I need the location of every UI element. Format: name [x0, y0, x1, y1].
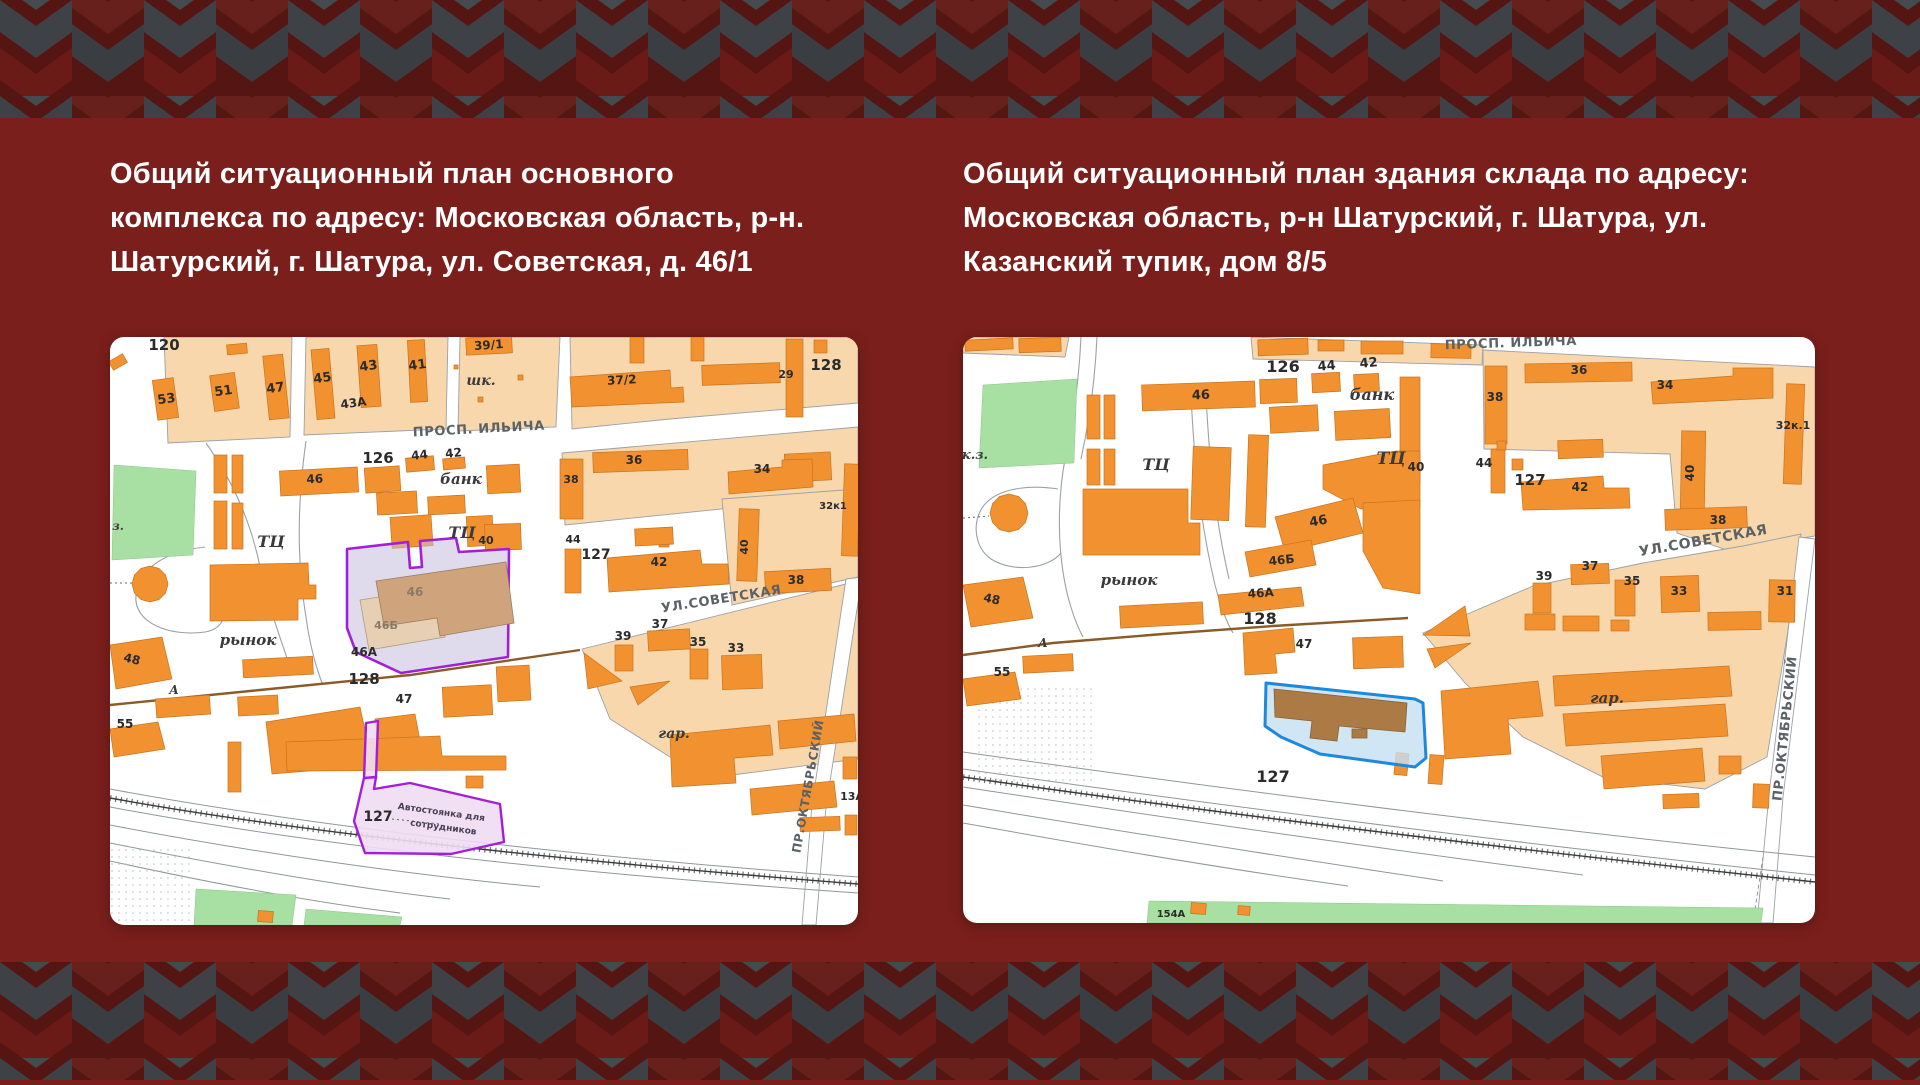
map-label: 46А [351, 645, 378, 659]
map-label: 42 [445, 445, 463, 461]
left-map-title: Общий ситуационный план основного компле… [110, 152, 870, 284]
map-label: 51 [214, 383, 234, 400]
map-label: 31 [1777, 584, 1794, 598]
map-label: 46Б [374, 619, 398, 632]
map-label: 37/2 [607, 372, 637, 388]
map-label: ТЦ [448, 523, 476, 542]
map-label: 36 [1571, 363, 1588, 377]
right-map-title: Общий ситуационный план здания склада по… [963, 152, 1833, 284]
map-label: 46 [306, 472, 323, 487]
map-label: 47 [266, 380, 286, 397]
map-label: 53 [157, 391, 177, 408]
map-label: 40 [1408, 460, 1425, 474]
map-label: 32к.1 [1776, 419, 1811, 432]
map-label: 44 [411, 447, 429, 463]
map-label: 40 [478, 534, 494, 547]
railway-hatch [963, 777, 1815, 882]
map-label: 46 [1308, 513, 1328, 531]
map-label: 128 [810, 356, 841, 374]
map-label: 46Б [1268, 552, 1295, 569]
map-label: 46А [1247, 585, 1275, 601]
map-label: 126 [1266, 357, 1299, 376]
map-label: 47 [396, 692, 413, 706]
left-title-line-3: Шатурский, г. Шатура, ул. Советская, д. … [110, 240, 870, 284]
map-label: 55 [994, 665, 1011, 679]
map-label: ТЦ [1142, 455, 1170, 474]
map-label: 55 [117, 717, 134, 731]
right-title-line-2: Московская область, р-н Шатурский, г. Ша… [963, 196, 1833, 240]
map-label: 40 [1683, 465, 1697, 482]
map-label: гар. [658, 726, 690, 742]
map-label: 127 [581, 547, 610, 563]
left-title-line-2: комплекса по адресу: Московская область,… [110, 196, 870, 240]
map-label: 42 [1572, 480, 1589, 494]
map-label: 46 [407, 585, 424, 599]
map-label: 42 [1359, 355, 1378, 372]
map-label: к.з. [963, 448, 988, 463]
map-label: А [168, 683, 179, 697]
map-label: 43 [359, 358, 379, 375]
right-situational-map: к.з.1264442банк46ТЦТЦ40рынок4646Б46А1284… [963, 337, 1815, 923]
map-label: 13А [840, 790, 858, 803]
map-label: 120 [148, 337, 179, 354]
map-label: 32к1 [819, 501, 847, 512]
map-label: 33 [728, 641, 745, 655]
left-title-line-1: Общий ситуационный план основного [110, 152, 870, 196]
dotted-path [963, 516, 989, 518]
map-label: 34 [754, 462, 771, 476]
map-label: 33 [1671, 584, 1688, 598]
map-label: 127 [1256, 767, 1289, 786]
map-label: 39/1 [474, 337, 504, 353]
left-situational-map: 120535147454343А4139/1шк.37/229128ПРОСП.… [110, 337, 858, 925]
map-label: 44 [1317, 358, 1336, 375]
highlight-warehouse [1265, 683, 1426, 767]
map-label: 46 [1192, 388, 1211, 404]
map-label: 44 [1476, 456, 1493, 470]
map-label: 35 [1624, 574, 1641, 588]
map-label: рынок [1101, 571, 1159, 589]
map-label: 38 [788, 573, 805, 587]
map-label: ТЦ [1376, 449, 1406, 469]
decorative-pattern-band-bottom [0, 962, 1920, 1080]
map-label: 29 [778, 368, 793, 381]
map-label: 126 [362, 449, 393, 467]
map-label: 38 [1710, 513, 1727, 527]
map-label: 47 [1296, 637, 1313, 651]
map-label: з. [112, 519, 124, 533]
left-map-svg: 120535147454343А4139/1шк.37/229128ПРОСП.… [110, 337, 858, 925]
map-label: 34 [1657, 378, 1674, 392]
map-label: 42 [651, 555, 668, 569]
right-title-line-1: Общий ситуационный план здания склада по… [963, 152, 1833, 196]
map-label: ПРОСП. ИЛЬИЧА [1445, 337, 1578, 353]
map-label: 37 [652, 617, 669, 631]
right-map-svg: к.з.1264442банк46ТЦТЦ40рынок4646Б46А1284… [963, 337, 1815, 923]
map-label: 44 [565, 533, 581, 546]
map-label: 39 [615, 629, 632, 643]
map-label: банк [1350, 385, 1395, 404]
map-label: рынок [220, 631, 278, 649]
map-label: 39 [1536, 569, 1553, 583]
map-label: 45 [313, 370, 333, 387]
dotted-area [110, 845, 194, 925]
map-label: 154А [1157, 909, 1186, 920]
map-label: 37 [1582, 559, 1599, 573]
right-title-line-3: Казанский тупик, дом 8/5 [963, 240, 1833, 284]
map-label: ТЦ [257, 532, 285, 551]
map-label: шк. [466, 373, 495, 389]
map-label: гар. [1590, 689, 1624, 707]
map-label: 35 [690, 635, 707, 649]
map-label: 128 [1243, 609, 1276, 628]
decorative-pattern-band-top [0, 0, 1920, 118]
map-label: 41 [408, 357, 428, 374]
map-label: 38 [563, 473, 578, 486]
map-label: А [1037, 636, 1048, 650]
map-label: 36 [626, 453, 643, 467]
map-label: 127 [1514, 471, 1545, 489]
map-label: банк [440, 470, 482, 488]
map-label: 40 [738, 539, 751, 555]
map-label: 127 [363, 809, 392, 825]
map-label: 128 [348, 670, 379, 688]
map-label: 38 [1487, 390, 1504, 404]
